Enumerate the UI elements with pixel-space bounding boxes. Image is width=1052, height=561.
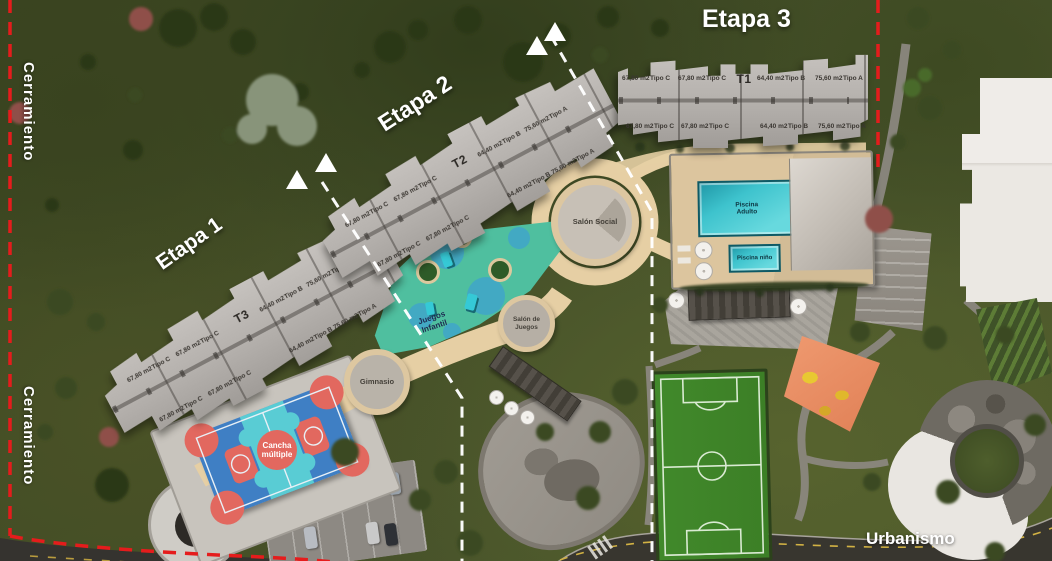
cerramiento-label-bottom: Cerramiento <box>20 386 37 485</box>
phase-boundary-lines <box>322 36 652 561</box>
cerramiento-label-top: Cerramiento <box>20 62 37 161</box>
boundary-lines-layer <box>0 0 1052 561</box>
urbanismo-label: Urbanismo <box>866 529 955 549</box>
etapa-3-label: Etapa 3 <box>702 5 791 34</box>
site-plan-canvas: Juegos Infantil Salón Social Salón de Ju… <box>0 0 1052 561</box>
